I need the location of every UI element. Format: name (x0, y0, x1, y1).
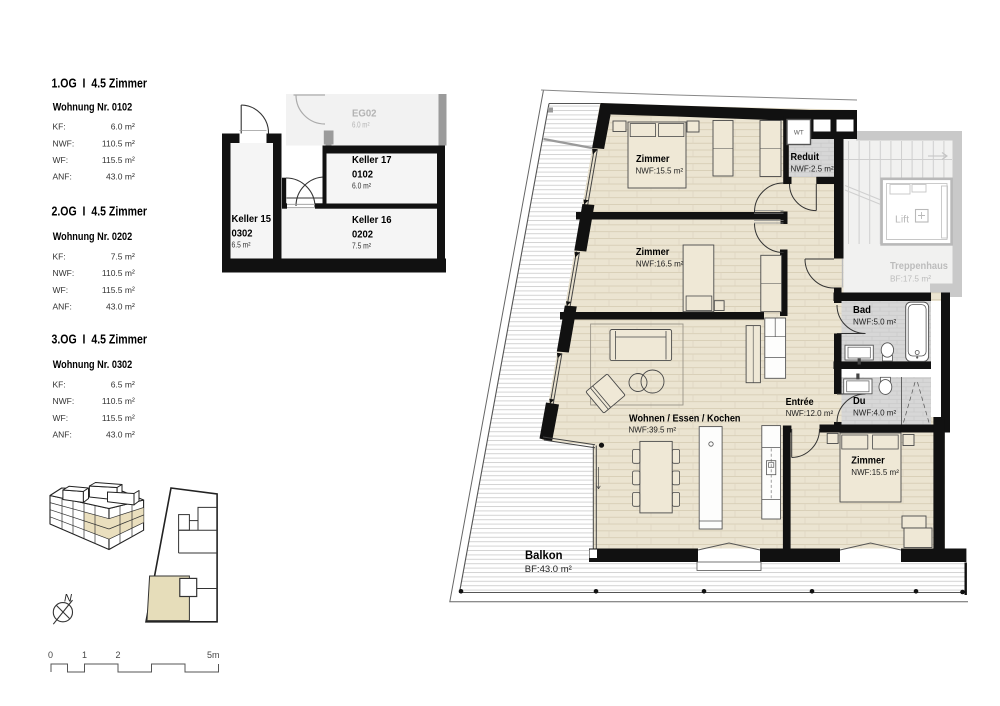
svg-text:1.OG I 4.5 Zimmer: 1.OG I 4.5 Zimmer (52, 77, 148, 91)
svg-text:KF:: KF: (53, 380, 66, 390)
svg-text:NWF:5.0 m²: NWF:5.0 m² (853, 318, 896, 327)
svg-text:Wohnen / Essen / Kochen: Wohnen / Essen / Kochen (629, 414, 741, 425)
svg-text:Lift: Lift (895, 214, 909, 226)
svg-text:6.0 m²: 6.0 m² (352, 181, 371, 190)
svg-text:Zimmer: Zimmer (851, 456, 885, 467)
svg-text:5m: 5m (207, 650, 220, 660)
svg-text:6.5 m²: 6.5 m² (111, 380, 135, 390)
svg-text:Wohnung Nr. 0202: Wohnung Nr. 0202 (53, 231, 133, 243)
svg-text:BF:17.5 m²: BF:17.5 m² (890, 274, 931, 284)
svg-text:43.0 m²: 43.0 m² (106, 301, 135, 311)
svg-text:Wohnung Nr. 0102: Wohnung Nr. 0102 (53, 102, 133, 114)
svg-text:110.5 m²: 110.5 m² (102, 138, 135, 148)
svg-text:43.0 m²: 43.0 m² (106, 429, 135, 439)
svg-text:43.0 m²: 43.0 m² (106, 172, 135, 182)
svg-text:NWF:12.0 m²: NWF:12.0 m² (786, 409, 834, 418)
svg-text:WF:: WF: (53, 285, 69, 295)
svg-text:KF:: KF: (53, 122, 66, 132)
svg-text:Bad: Bad (853, 305, 871, 316)
svg-text:NWF:4.0 m²: NWF:4.0 m² (853, 409, 896, 418)
svg-text:2: 2 (116, 650, 121, 660)
svg-text:Keller 15: Keller 15 (232, 214, 272, 225)
svg-text:Keller 17: Keller 17 (352, 155, 392, 166)
svg-text:3.OG I 4.5 Zimmer: 3.OG I 4.5 Zimmer (52, 333, 148, 347)
svg-text:WT: WT (794, 130, 804, 137)
svg-text:NWF:16.5 m²: NWF:16.5 m² (636, 260, 684, 269)
svg-text:6.0 m²: 6.0 m² (111, 122, 135, 132)
svg-text:Zimmer: Zimmer (636, 154, 670, 165)
svg-text:ANF:: ANF: (53, 172, 72, 182)
svg-text:NWF:39.5 m²: NWF:39.5 m² (629, 426, 677, 435)
svg-text:ANF:: ANF: (53, 301, 72, 311)
svg-text:Zimmer: Zimmer (636, 247, 670, 258)
svg-text:0: 0 (48, 650, 53, 660)
svg-text:1: 1 (82, 650, 87, 660)
svg-text:ANF:: ANF: (53, 429, 72, 439)
svg-text:115.5 m²: 115.5 m² (102, 285, 135, 295)
svg-text:Balkon: Balkon (525, 548, 563, 562)
svg-text:Wohnung Nr. 0302: Wohnung Nr. 0302 (53, 359, 133, 371)
svg-text:NWF:: NWF: (53, 138, 75, 148)
svg-text:N: N (64, 593, 72, 605)
svg-text:Entrée: Entrée (786, 397, 814, 408)
svg-text:NWF:: NWF: (53, 396, 75, 406)
svg-text:6.0 m²: 6.0 m² (352, 121, 370, 130)
svg-text:115.5 m²: 115.5 m² (102, 413, 135, 423)
svg-text:7.5 m²: 7.5 m² (111, 252, 135, 262)
svg-text:NWF:15.5 m²: NWF:15.5 m² (851, 468, 899, 477)
svg-text:2.OG I 4.5 Zimmer: 2.OG I 4.5 Zimmer (52, 205, 148, 219)
svg-text:Treppenhaus: Treppenhaus (890, 260, 948, 272)
svg-text:110.5 m²: 110.5 m² (102, 396, 135, 406)
svg-text:KF:: KF: (53, 252, 66, 262)
svg-text:0102: 0102 (352, 169, 373, 180)
svg-text:Reduit: Reduit (791, 152, 820, 163)
svg-text:NWF:2.5 m²: NWF:2.5 m² (791, 165, 834, 174)
svg-text:6.5 m²: 6.5 m² (232, 241, 251, 250)
svg-text:Keller 16: Keller 16 (352, 215, 392, 226)
svg-text:7.5 m²: 7.5 m² (352, 242, 371, 251)
svg-text:115.5 m²: 115.5 m² (102, 155, 135, 165)
svg-text:0302: 0302 (232, 228, 253, 239)
svg-text:NWF:: NWF: (53, 268, 75, 278)
svg-text:BF:43.0 m²: BF:43.0 m² (525, 564, 572, 575)
svg-text:EG02: EG02 (352, 108, 377, 120)
svg-text:Du: Du (853, 396, 866, 407)
svg-text:NWF:15.5 m²: NWF:15.5 m² (636, 167, 684, 176)
svg-text:0202: 0202 (352, 230, 373, 241)
svg-text:110.5 m²: 110.5 m² (102, 268, 135, 278)
svg-text:WF:: WF: (53, 413, 69, 423)
svg-text:WF:: WF: (53, 155, 69, 165)
